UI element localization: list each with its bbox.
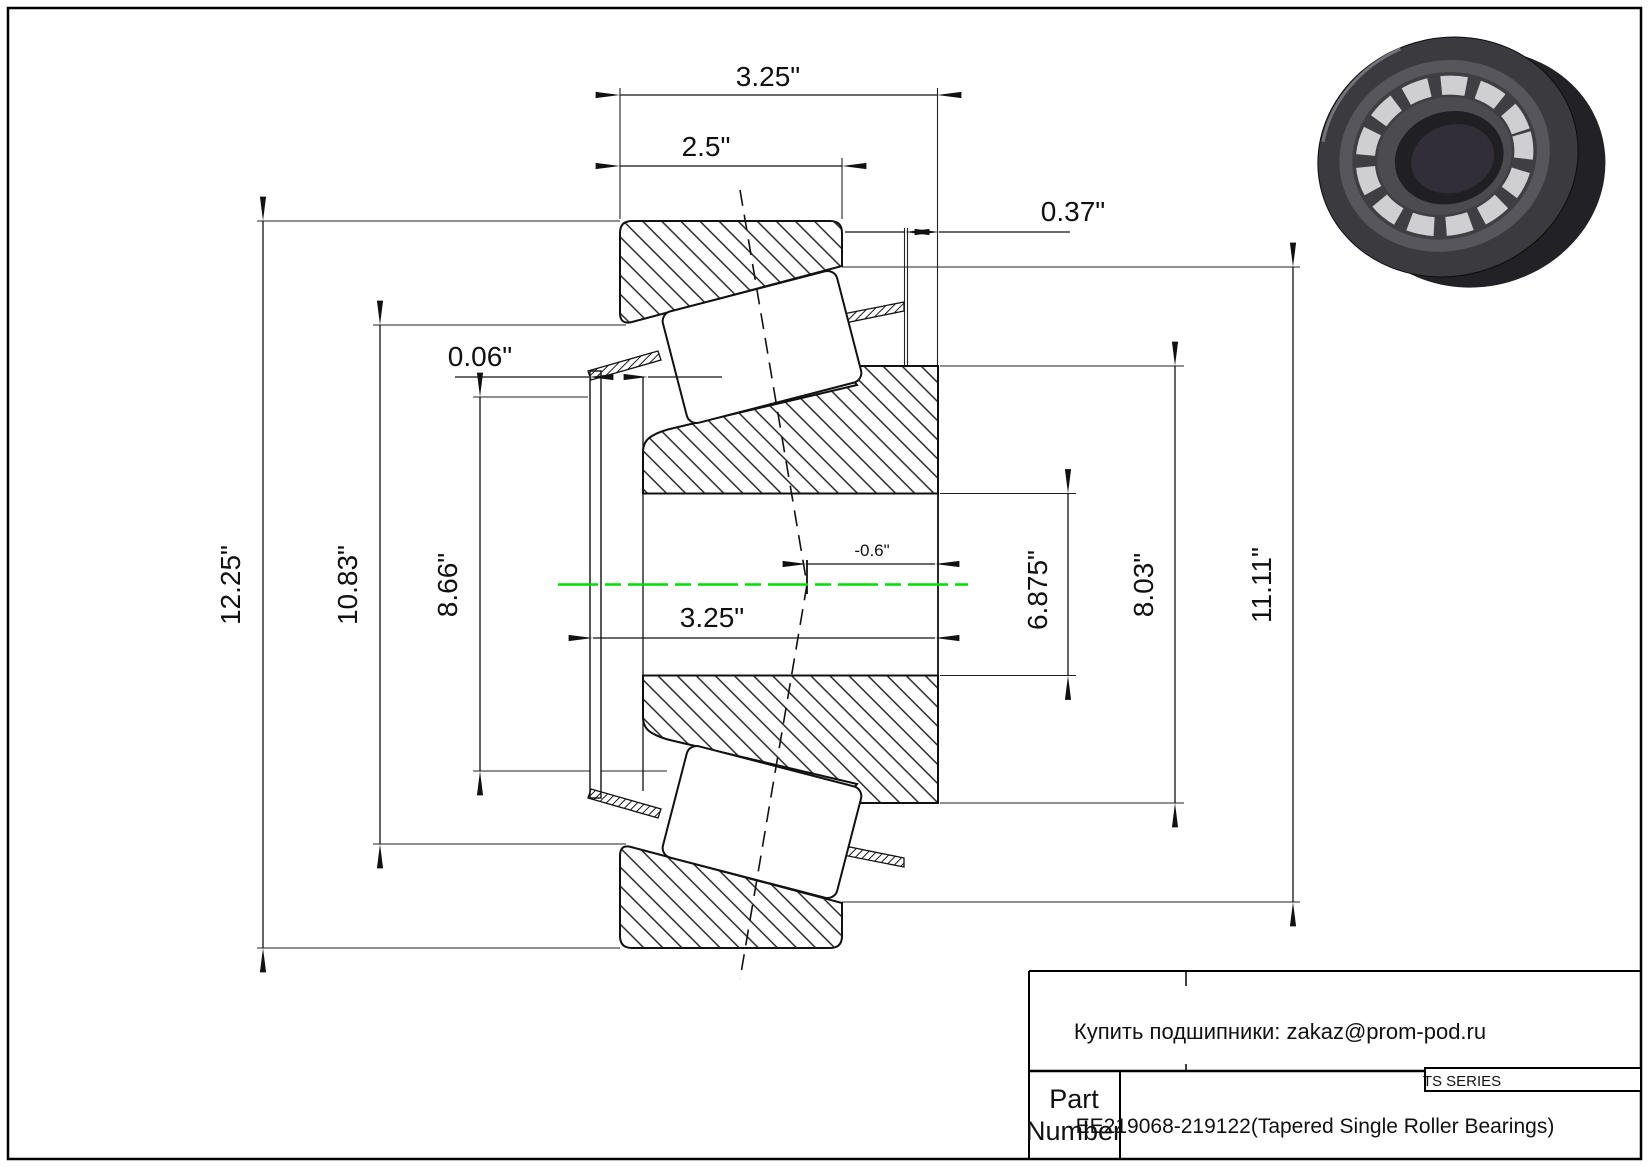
series-label: TS SERIES: [1423, 1073, 1501, 1090]
dim-cage-od: 10.83": [332, 545, 363, 625]
drawing-page: 3.25" 2.5" 0.37" 0.06" 3.25" -0.6" 12.25…: [0, 0, 1649, 1167]
dim-cage-standout: 0.37": [1041, 196, 1105, 227]
dim-seal-od: 8.66": [432, 553, 463, 617]
part-label-line1: Part: [1049, 1084, 1099, 1114]
dim-cup-width: 2.5": [682, 131, 731, 162]
technical-drawing: 3.25" 2.5" 0.37" 0.06" 3.25" -0.6" 12.25…: [0, 0, 1649, 1167]
dim-bore: 6.875": [1022, 550, 1053, 630]
dim-overall-width: 3.25": [736, 61, 800, 92]
dim-front-standout: 0.06": [448, 341, 512, 372]
contact-text: Купить подшипники: zakaz@prom-pod.ru: [1074, 1019, 1486, 1044]
dim-raceway-od: 11.11": [1246, 547, 1277, 623]
dim-rib-od: 8.03": [1128, 553, 1159, 617]
cage-strip-upper-left: [588, 351, 661, 380]
cage-strip-lower-left: [588, 789, 661, 818]
dim-cone-width: 3.25": [680, 602, 744, 633]
title-block: Купить подшипники: zakaz@prom-pod.ru TS …: [1026, 971, 1641, 1159]
part-number-value: EE219068-219122(Tapered Single Roller Be…: [1076, 1115, 1555, 1138]
bearing-3d-render: [1289, 0, 1634, 325]
dim-cup-od: 12.25": [215, 545, 246, 625]
dim-eff-center: -0.6": [854, 541, 889, 560]
